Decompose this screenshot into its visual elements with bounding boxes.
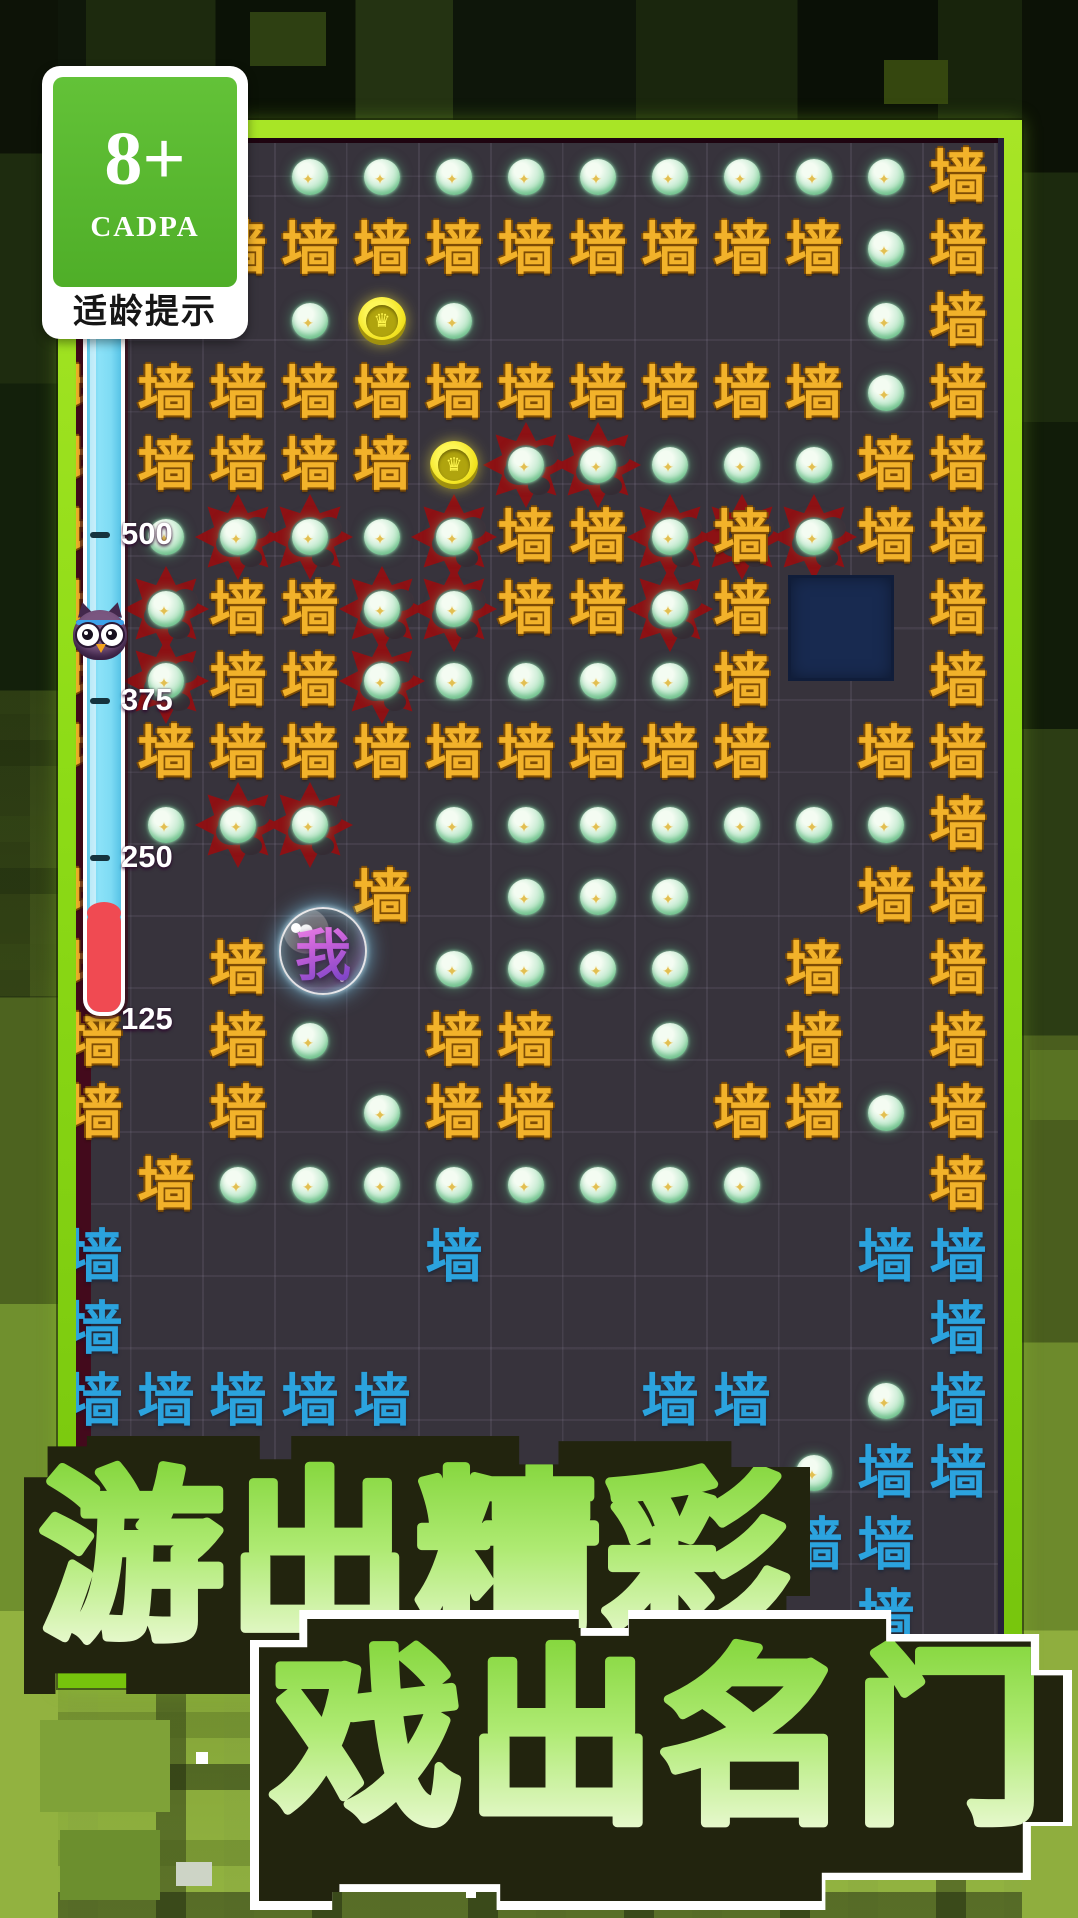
- sparkle-icon: ✦: [806, 172, 818, 186]
- orb-cell: ✦: [850, 1077, 922, 1149]
- sparkle-icon: ✦: [446, 604, 458, 618]
- wall-tile-gold: 墙: [922, 573, 994, 645]
- pearl-orb: ✦: [364, 591, 400, 627]
- wall-tile-gold: 墙: [706, 1077, 778, 1149]
- orb-cell: ✦: [562, 141, 634, 213]
- slogan-badge-2-outline: 戏出名门: [250, 1610, 1072, 1910]
- pearl-orb: ✦: [580, 159, 616, 195]
- crown-coin: ♛: [430, 441, 478, 489]
- orb-cell: ✦: [418, 1149, 490, 1221]
- wall-tile-gold: 墙: [274, 645, 346, 717]
- wall-tile-blue: 墙: [76, 1365, 130, 1437]
- slogan-badge-2: 戏出名门: [259, 1619, 1063, 1901]
- sparkle-icon: ✦: [662, 892, 674, 906]
- sparkle-icon: ✦: [662, 460, 674, 474]
- pearl-orb: ✦: [580, 1167, 616, 1203]
- pearl-orb: ✦: [580, 951, 616, 987]
- pearl-orb: ✦: [292, 159, 328, 195]
- sparkle-icon: ✦: [302, 1036, 314, 1050]
- pearl-orb: ✦: [796, 447, 832, 483]
- age-rating-caption: 适龄提示: [53, 287, 237, 335]
- pearl-orb: ✦: [652, 1167, 688, 1203]
- age-rating-value: 8+: [104, 120, 185, 200]
- pearl-orb: ✦: [868, 807, 904, 843]
- wall-tile-gold: 墙: [274, 573, 346, 645]
- orb-cell: ✦: [778, 141, 850, 213]
- pearl-orb: ✦: [796, 807, 832, 843]
- meter-label-375: 375: [121, 682, 173, 718]
- orb-cell: ✦: [274, 141, 346, 213]
- sparkle-icon: ✦: [446, 964, 458, 978]
- sparkle-icon: ✦: [158, 820, 170, 834]
- sparkle-icon: ✦: [878, 316, 890, 330]
- sparkle-icon: ✦: [374, 1108, 386, 1122]
- sparkle-icon: ✦: [230, 1180, 242, 1194]
- wall-tile-gold: 墙: [778, 933, 850, 1005]
- wall-tile-blue: 墙: [76, 1293, 130, 1365]
- orb-cell: ✦: [634, 789, 706, 861]
- wall-tile-gold: 墙: [274, 717, 346, 789]
- pearl-orb: ✦: [436, 303, 472, 339]
- sparkle-icon: ✦: [374, 1180, 386, 1194]
- pearl-orb: ✦: [508, 159, 544, 195]
- wall-tile-gold: 墙: [562, 501, 634, 573]
- sparkle-icon: ✦: [518, 460, 530, 474]
- orb-cell: ✦: [274, 1149, 346, 1221]
- wall-tile-gold: 墙: [634, 357, 706, 429]
- pearl-orb: ✦: [436, 159, 472, 195]
- wall-tile-gold: 墙: [706, 573, 778, 645]
- orb-cell: ✦: [706, 1149, 778, 1221]
- wall-tile-gold: 墙: [490, 357, 562, 429]
- wall-tile-blue: 墙: [850, 1221, 922, 1293]
- pearl-orb: ✦: [724, 807, 760, 843]
- navy-block: [788, 575, 894, 681]
- player-bubble[interactable]: 我: [279, 907, 367, 995]
- orb-cell: ✦: [850, 789, 922, 861]
- orb-cell: ✦: [562, 933, 634, 1005]
- sparkle-icon: ✦: [590, 676, 602, 690]
- wall-tile-gold: 墙: [850, 501, 922, 573]
- pearl-orb: ✦: [364, 663, 400, 699]
- pearl-orb: ✦: [436, 519, 472, 555]
- wall-tile-blue: 墙: [274, 1365, 346, 1437]
- thermometer-danger-zone: [87, 912, 121, 1012]
- sparkle-icon: ✦: [374, 532, 386, 546]
- sparkle-icon: ✦: [446, 172, 458, 186]
- wall-tile-gold: 墙: [634, 717, 706, 789]
- age-rating-org: CADPA: [90, 211, 199, 244]
- pearl-orb: ✦: [868, 1095, 904, 1131]
- sparkle-icon: ✦: [662, 532, 674, 546]
- pearl-orb: ✦: [868, 159, 904, 195]
- sparkle-icon: ✦: [590, 820, 602, 834]
- wall-tile-blue: 墙: [76, 1221, 130, 1293]
- sparkle-icon: ✦: [374, 604, 386, 618]
- pearl-orb: ✦: [580, 447, 616, 483]
- sparkle-icon: ✦: [878, 244, 890, 258]
- orb-cell: ✦: [634, 1149, 706, 1221]
- wall-tile-gold: 墙: [922, 141, 994, 213]
- player-label: 我: [295, 911, 351, 992]
- pearl-orb: ✦: [292, 807, 328, 843]
- sparkle-icon: ✦: [878, 820, 890, 834]
- wall-tile-blue: 墙: [706, 1365, 778, 1437]
- wall-tile-gold: 墙: [850, 861, 922, 933]
- sparkle-icon: ✦: [446, 820, 458, 834]
- pearl-orb: ✦: [868, 303, 904, 339]
- pearl-orb: ✦: [292, 519, 328, 555]
- orb-cell: ✦: [634, 933, 706, 1005]
- wall-tile-gold: 墙: [202, 933, 274, 1005]
- orb-cell: ✦: [562, 645, 634, 717]
- pearl-orb: ✦: [220, 1167, 256, 1203]
- meter-label-125: 125: [121, 1001, 173, 1037]
- orb-cell: ✦: [202, 1149, 274, 1221]
- owl-mascot-icon: [70, 604, 130, 662]
- sparkle-icon: ✦: [590, 172, 602, 186]
- sparkle-icon: ✦: [518, 1180, 530, 1194]
- wall-tile-gold: 墙: [346, 213, 418, 285]
- pearl-orb: ✦: [652, 879, 688, 915]
- wall-tile-gold: 墙: [76, 1077, 130, 1149]
- sparkle-icon: ✦: [446, 1180, 458, 1194]
- wall-tile-gold: 墙: [922, 645, 994, 717]
- pearl-orb: ✦: [148, 807, 184, 843]
- pearl-orb: ✦: [724, 447, 760, 483]
- camo-patch: [884, 60, 948, 104]
- pearl-orb: ✦: [652, 447, 688, 483]
- wall-tile-gold: 墙: [706, 717, 778, 789]
- wall-tile-gold: 墙: [922, 501, 994, 573]
- orb-cell: ✦: [706, 141, 778, 213]
- pearl-orb: ✦: [220, 807, 256, 843]
- owl-beak: [96, 644, 106, 653]
- pearl-orb: ✦: [436, 663, 472, 699]
- orb-cell: ✦: [850, 141, 922, 213]
- meter-label-250: 250: [121, 839, 173, 875]
- wall-tile-gold: 墙: [922, 285, 994, 357]
- sparkle-icon: ✦: [734, 460, 746, 474]
- wall-tile-gold: 墙: [778, 1005, 850, 1077]
- pixel-accent: [196, 1752, 208, 1764]
- pearl-orb: ✦: [364, 519, 400, 555]
- wall-tile-gold: 墙: [418, 1005, 490, 1077]
- wall-tile-gold: 墙: [202, 429, 274, 501]
- pearl-orb: ✦: [508, 663, 544, 699]
- sparkle-icon: ✦: [302, 532, 314, 546]
- sparkle-icon: ✦: [302, 172, 314, 186]
- wall-tile-gold: 墙: [922, 1077, 994, 1149]
- orb-cell: ✦: [418, 645, 490, 717]
- wall-tile-blue: 墙: [418, 1221, 490, 1293]
- wall-tile-gold: 墙: [850, 717, 922, 789]
- sparkle-icon: ✦: [158, 604, 170, 618]
- pixel-accent: [176, 1862, 212, 1886]
- sparkle-icon: ✦: [806, 820, 818, 834]
- orb-cell: ✦: [850, 213, 922, 285]
- wall-tile-gold: 墙: [418, 717, 490, 789]
- orb-cell: ✦: [490, 141, 562, 213]
- pearl-orb: ✦: [652, 807, 688, 843]
- sparkle-icon: ✦: [734, 820, 746, 834]
- orb-cell: ✦: [418, 933, 490, 1005]
- wall-tile-gold: 墙: [490, 717, 562, 789]
- orb-cell: ✦: [634, 1005, 706, 1077]
- pearl-orb: ✦: [652, 951, 688, 987]
- wall-tile-gold: 墙: [562, 357, 634, 429]
- orb-cell: ✦: [418, 789, 490, 861]
- pearl-orb: ✦: [436, 591, 472, 627]
- wall-tile-gold: 墙: [778, 213, 850, 285]
- wall-tile-gold: 墙: [346, 357, 418, 429]
- sparkle-icon: ✦: [302, 1180, 314, 1194]
- pearl-orb: ✦: [796, 519, 832, 555]
- sparkle-icon: ✦: [662, 1180, 674, 1194]
- pearl-orb: ✦: [652, 159, 688, 195]
- camo-patch: [60, 1830, 160, 1900]
- pearl-orb: ✦: [292, 1023, 328, 1059]
- wall-tile-gold: 墙: [922, 429, 994, 501]
- camo-patch: [250, 12, 326, 66]
- wall-tile-gold: 墙: [562, 717, 634, 789]
- coin-cell: ♛: [346, 285, 418, 357]
- orb-cell: ✦: [850, 285, 922, 357]
- pearl-orb: ✦: [436, 807, 472, 843]
- sparkle-icon: ✦: [518, 820, 530, 834]
- sparkle-icon: ✦: [662, 964, 674, 978]
- orb-cell: ✦: [634, 141, 706, 213]
- sparkle-icon: ✦: [878, 172, 890, 186]
- slogan-line2-svg: 戏出名门: [259, 1619, 1063, 1901]
- wall-tile-gold: 墙: [274, 213, 346, 285]
- sparkle-icon: ✦: [230, 532, 242, 546]
- camo-patch: [1030, 1050, 1078, 1120]
- age-rating-green-box: 8+ CADPA: [53, 77, 237, 287]
- sparkle-icon: ✦: [446, 316, 458, 330]
- wall-tile-blue: 墙: [922, 1221, 994, 1293]
- wall-tile-gold: 墙: [634, 213, 706, 285]
- sparkle-icon: ✦: [518, 676, 530, 690]
- board-right-edge: [998, 138, 1004, 1670]
- pearl-orb: ✦: [364, 159, 400, 195]
- orb-cell: ✦: [634, 429, 706, 501]
- wall-tile-blue: 墙: [346, 1365, 418, 1437]
- pearl-orb: ✦: [292, 303, 328, 339]
- crown-icon: ♛: [366, 305, 398, 337]
- sparkle-icon: ✦: [374, 172, 386, 186]
- wall-tile-gold: 墙: [418, 357, 490, 429]
- wall-tile-blue: 墙: [922, 1437, 994, 1509]
- sparkle-icon: ✦: [302, 820, 314, 834]
- orb-cell: ✦: [490, 789, 562, 861]
- wall-tile-gold: 墙: [418, 1077, 490, 1149]
- pearl-orb: ✦: [724, 1167, 760, 1203]
- wall-tile-blue: 墙: [922, 1365, 994, 1437]
- sparkle-icon: ✦: [878, 1108, 890, 1122]
- sparkle-icon: ✦: [446, 532, 458, 546]
- wall-tile-blue: 墙: [202, 1365, 274, 1437]
- wall-tile-gold: 墙: [850, 429, 922, 501]
- pearl-orb: ✦: [436, 951, 472, 987]
- wall-tile-gold: 墙: [130, 1149, 202, 1221]
- wall-tile-gold: 墙: [922, 213, 994, 285]
- orb-cell: ✦: [562, 1149, 634, 1221]
- camo-right-strip: [1022, 0, 1078, 1918]
- wall-tile-blue: 墙: [634, 1365, 706, 1437]
- meter-tick: [90, 698, 110, 704]
- orb-cell: ✦: [490, 1149, 562, 1221]
- orb-cell: ✦: [490, 861, 562, 933]
- orb-cell: ✦: [418, 285, 490, 357]
- pearl-orb: ✦: [580, 879, 616, 915]
- wall-tile-gold: 墙: [418, 213, 490, 285]
- orb-cell: ✦: [850, 1365, 922, 1437]
- orb-cell: ✦: [490, 645, 562, 717]
- wall-tile-blue: 墙: [850, 1509, 922, 1581]
- wall-tile-gold: 墙: [706, 645, 778, 717]
- sparkle-icon: ✦: [806, 532, 818, 546]
- wall-tile-gold: 墙: [490, 573, 562, 645]
- orb-cell: ✦: [706, 789, 778, 861]
- sparkle-icon: ✦: [590, 1180, 602, 1194]
- meter-label-500: 500: [121, 516, 173, 552]
- wall-tile-gold: 墙: [922, 1005, 994, 1077]
- pearl-orb: ✦: [508, 447, 544, 483]
- sparkle-icon: ✦: [518, 172, 530, 186]
- wall-tile-gold: 墙: [202, 357, 274, 429]
- wall-tile-gold: 墙: [346, 429, 418, 501]
- orb-cell: ✦: [346, 1077, 418, 1149]
- pearl-orb: ✦: [364, 1095, 400, 1131]
- orb-cell: ✦: [634, 861, 706, 933]
- wall-tile-gold: 墙: [490, 213, 562, 285]
- sparkle-icon: ✦: [878, 388, 890, 402]
- orb-cell: ✦: [418, 141, 490, 213]
- sparkle-icon: ✦: [662, 604, 674, 618]
- sparkle-icon: ✦: [518, 892, 530, 906]
- wall-tile-gold: 墙: [922, 933, 994, 1005]
- wall-tile-gold: 墙: [562, 573, 634, 645]
- coin-cell: ♛: [418, 429, 490, 501]
- wall-tile-gold: 墙: [202, 573, 274, 645]
- pearl-orb: ✦: [508, 1167, 544, 1203]
- pearl-orb: ✦: [220, 519, 256, 555]
- wall-tile-gold: 墙: [202, 1077, 274, 1149]
- sparkle-icon: ✦: [590, 964, 602, 978]
- wall-tile-gold: 墙: [490, 1005, 562, 1077]
- pearl-orb: ✦: [508, 951, 544, 987]
- orb-cell: ✦: [634, 645, 706, 717]
- sparkle-icon: ✦: [590, 892, 602, 906]
- sparkle-icon: ✦: [518, 964, 530, 978]
- wall-tile-blue: 墙: [922, 1293, 994, 1365]
- orb-cell: ✦: [274, 285, 346, 357]
- wall-tile-gold: 墙: [922, 1149, 994, 1221]
- pearl-orb: ✦: [436, 1167, 472, 1203]
- sparkle-icon: ✦: [734, 1180, 746, 1194]
- pearl-orb: ✦: [580, 663, 616, 699]
- sparkle-icon: ✦: [662, 172, 674, 186]
- pearl-orb: ✦: [652, 591, 688, 627]
- sparkle-icon: ✦: [662, 1036, 674, 1050]
- wall-tile-gold: 墙: [130, 429, 202, 501]
- wall-tile-blue: 墙: [850, 1437, 922, 1509]
- sparkle-icon: ✦: [878, 1396, 890, 1410]
- wall-tile-gold: 墙: [922, 861, 994, 933]
- orb-cell: ✦: [562, 861, 634, 933]
- wall-tile-gold: 墙: [202, 1005, 274, 1077]
- wall-tile-gold: 墙: [274, 357, 346, 429]
- camo-patch: [40, 1720, 170, 1812]
- pearl-orb: ✦: [724, 159, 760, 195]
- meter-tick: [90, 855, 110, 861]
- sparkle-icon: ✦: [590, 460, 602, 474]
- pearl-orb: ✦: [796, 159, 832, 195]
- orb-cell: ✦: [778, 789, 850, 861]
- wall-tile-gold: 墙: [922, 717, 994, 789]
- sparkle-icon: ✦: [662, 820, 674, 834]
- pearl-orb: ✦: [292, 1167, 328, 1203]
- sparkle-icon: ✦: [374, 676, 386, 690]
- wall-tile-gold: 墙: [130, 717, 202, 789]
- crown-icon: ♛: [438, 449, 470, 481]
- pearl-orb: ✦: [652, 519, 688, 555]
- wall-tile-gold: 墙: [778, 1077, 850, 1149]
- wall-tile-blue: 墙: [130, 1365, 202, 1437]
- pearl-orb: ✦: [652, 663, 688, 699]
- wall-tile-gold: 墙: [346, 717, 418, 789]
- orb-cell: ✦: [850, 357, 922, 429]
- sparkle-icon: ✦: [230, 820, 242, 834]
- orb-cell: ✦: [562, 789, 634, 861]
- pearl-orb: ✦: [148, 591, 184, 627]
- wall-tile-gold: 墙: [778, 357, 850, 429]
- orb-cell: ✦: [778, 429, 850, 501]
- age-rating-badge: 8+ CADPA 适龄提示: [42, 66, 248, 339]
- pearl-orb: ✦: [580, 807, 616, 843]
- pearl-orb: ✦: [364, 1167, 400, 1203]
- wall-tile-gold: 墙: [130, 357, 202, 429]
- sparkle-icon: ✦: [734, 172, 746, 186]
- sparkle-icon: ✦: [662, 676, 674, 690]
- wall-tile-gold: 墙: [706, 501, 778, 573]
- wall-tile-gold: 墙: [922, 789, 994, 861]
- pearl-orb: ✦: [508, 807, 544, 843]
- pearl-orb: ✦: [868, 1383, 904, 1419]
- meter-tick: [90, 532, 110, 538]
- wall-tile-gold: 墙: [706, 357, 778, 429]
- wall-tile-gold: 墙: [202, 645, 274, 717]
- wall-tile-gold: 墙: [202, 717, 274, 789]
- pearl-orb: ✦: [652, 1023, 688, 1059]
- sparkle-icon: ✦: [806, 460, 818, 474]
- pearl-orb: ✦: [868, 231, 904, 267]
- orb-cell: ✦: [346, 501, 418, 573]
- orb-cell: ✦: [706, 429, 778, 501]
- wall-tile-gold: 墙: [490, 501, 562, 573]
- sparkle-icon: ✦: [302, 316, 314, 330]
- wall-tile-gold: 墙: [706, 213, 778, 285]
- pearl-orb: ✦: [508, 879, 544, 915]
- orb-cell: ✦: [490, 933, 562, 1005]
- orb-cell: ✦: [274, 1005, 346, 1077]
- pearl-orb: ✦: [868, 375, 904, 411]
- app-screen: 墙墙墙墙墙墙墙墙墙墙墙墙墙墙墙墙墙墙墙墙墙墙墙墙墙墙墙墙墙墙墙墙墙墙墙墙墙墙墙墙…: [0, 0, 1078, 1918]
- wall-tile-gold: 墙: [922, 357, 994, 429]
- wall-tile-gold: 墙: [490, 1077, 562, 1149]
- crown-coin: ♛: [358, 297, 406, 345]
